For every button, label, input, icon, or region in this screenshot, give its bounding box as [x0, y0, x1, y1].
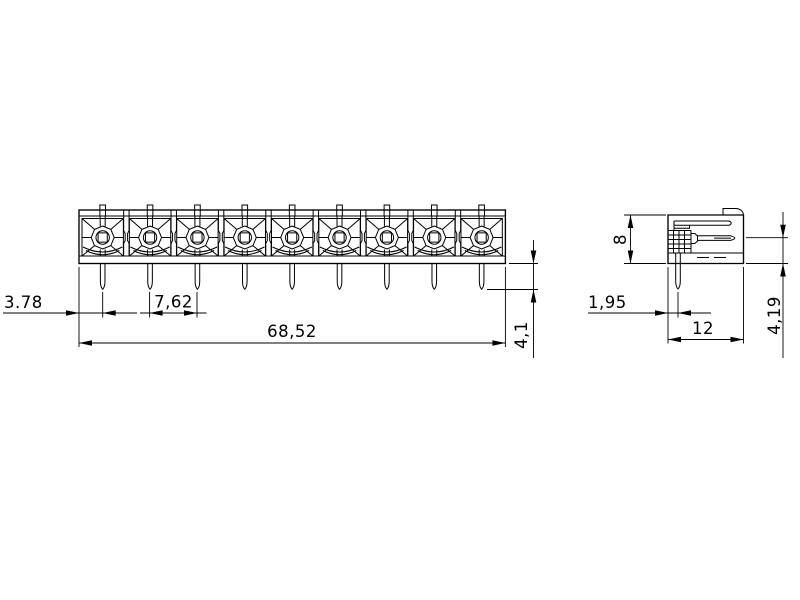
wire-opening-square	[193, 233, 202, 242]
drawing-canvas: 3.78 7,62 68,52 4,1	[0, 0, 800, 600]
dimension-overall-width: 68,52	[79, 267, 505, 347]
screw-cavity-octagon	[328, 226, 351, 249]
side-internal-detail	[668, 221, 744, 258]
wire-opening-square	[335, 233, 344, 242]
dim-label-body-depth: 12	[692, 319, 714, 338]
wire-opening-square	[98, 233, 107, 242]
arrowhead	[628, 215, 634, 228]
dimension-body-depth: 12	[668, 267, 744, 344]
solder-pins	[100, 264, 484, 290]
wire-opening-square	[145, 233, 154, 242]
wire-opening-square	[382, 233, 391, 242]
screw-cavity-octagon	[91, 226, 114, 249]
arrowhead	[780, 225, 786, 238]
arrowhead	[668, 337, 681, 342]
arrowhead	[79, 340, 92, 345]
side-solder-pin	[676, 253, 681, 289]
arrowhead	[655, 310, 668, 315]
screw-cavity-octagon	[233, 226, 256, 249]
arrowhead	[66, 310, 79, 315]
solder-pin	[148, 264, 153, 290]
arrowhead	[531, 290, 537, 303]
arrowhead	[531, 251, 537, 264]
wire-opening-square	[477, 233, 486, 242]
arrowhead	[103, 310, 116, 315]
arrowhead	[780, 264, 786, 277]
dim-label-body-height: 8	[611, 234, 630, 245]
terminal-cells	[82, 205, 502, 256]
solder-pin	[195, 264, 200, 290]
dim-label-pin-offset-from-face: 1,95	[588, 293, 627, 312]
dimension-pin-pitch: 7,62	[140, 292, 207, 318]
arrowhead	[678, 310, 691, 315]
solder-pin	[432, 264, 437, 290]
screw-cavity-octagon	[375, 226, 398, 249]
cell-separator	[266, 210, 271, 256]
screw-cavity-octagon	[423, 226, 446, 249]
arrowhead	[628, 251, 634, 264]
side-view	[668, 209, 744, 289]
technical-drawing: 3.78 7,62 68,52 4,1	[0, 0, 800, 600]
wire-opening-square	[240, 233, 249, 242]
cell-separator	[313, 210, 318, 256]
screw-cavity-octagon	[139, 226, 162, 249]
solder-pin	[100, 264, 105, 290]
solder-pin	[337, 264, 342, 290]
dim-label-pin-protrusion: 4,1	[512, 321, 531, 349]
dim-label-first-pin-offset: 3.78	[4, 293, 43, 312]
solder-pin	[479, 264, 484, 290]
dim-label-blade-axis-to-bottom: 4,19	[765, 296, 784, 335]
dimension-first-pin-offset: 3.78	[3, 267, 137, 347]
dimension-blade-axis-to-bottom: 4,19	[746, 212, 788, 358]
screw-cavity-octagon	[470, 226, 493, 249]
cell-separator	[124, 210, 129, 256]
dimension-pin-protrusion: 4,1	[487, 240, 538, 358]
solder-pin	[290, 264, 295, 290]
arrowhead	[731, 337, 744, 342]
dimension-body-height: 8	[611, 215, 666, 264]
wire-opening-square	[430, 233, 439, 242]
solder-pin	[242, 264, 247, 290]
arrowhead	[492, 340, 505, 345]
front-view	[79, 205, 505, 289]
dim-label-overall-width: 68,52	[267, 322, 317, 341]
wire-opening-square	[288, 233, 297, 242]
cell-separator	[361, 210, 366, 256]
cell-separator	[455, 210, 460, 256]
cell-separator	[408, 210, 413, 256]
cell-separator	[171, 210, 176, 256]
screw-cavity-octagon	[281, 226, 304, 249]
screw-cavity-octagon	[186, 226, 209, 249]
cell-separator	[218, 210, 223, 256]
dim-label-pin-pitch: 7,62	[154, 293, 193, 312]
solder-pin	[385, 264, 390, 290]
